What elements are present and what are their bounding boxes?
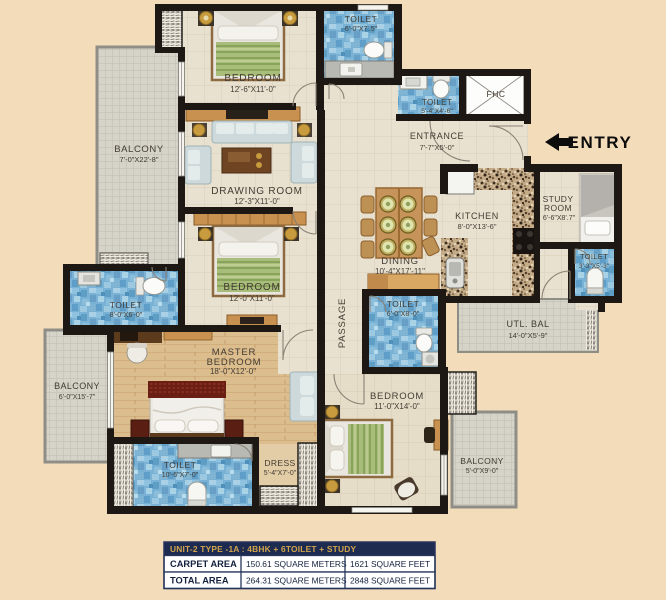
svg-text:CARPET AREA: CARPET AREA [170, 559, 237, 569]
svg-text:DINING: DINING [381, 256, 418, 267]
svg-text:UTL. BAL: UTL. BAL [506, 319, 549, 329]
svg-text:TOILET: TOILET [387, 299, 420, 309]
svg-text:150.61 SQUARE METERS: 150.61 SQUARE METERS [246, 559, 347, 569]
svg-text:7'-0"X22'-8": 7'-0"X22'-8" [119, 155, 158, 164]
svg-text:14'-0"X5'-9": 14'-0"X5'-9" [508, 331, 547, 340]
svg-text:BALCONY: BALCONY [460, 456, 503, 466]
svg-text:8'-0"X13'-6": 8'-0"X13'-6" [457, 222, 496, 231]
svg-text:ENTRANCE: ENTRANCE [410, 131, 464, 141]
svg-text:6'-0"X7'.5": 6'-0"X7'.5" [345, 26, 378, 33]
svg-text:TOILET: TOILET [580, 252, 608, 261]
svg-text:8'-0"X6'-0": 8'-0"X6'-0" [110, 312, 143, 319]
svg-text:10'-6"X7'-0": 10'-6"X7'-0" [162, 472, 199, 479]
svg-text:6'-6"X8'.7": 6'-6"X8'.7" [543, 215, 576, 222]
svg-text:TOTAL AREA: TOTAL AREA [170, 576, 229, 586]
svg-text:12'-6"X11'-0": 12'-6"X11'-0" [230, 85, 276, 94]
svg-text:TOILET: TOILET [345, 14, 378, 24]
svg-text:12'-0"X11'-0": 12'-0"X11'-0" [229, 294, 275, 303]
svg-text:BALCONY: BALCONY [54, 381, 100, 391]
svg-text:TOILET: TOILET [164, 460, 197, 470]
svg-text:1621 SQUARE FEET: 1621 SQUARE FEET [350, 559, 430, 569]
svg-text:BEDROOM: BEDROOM [370, 391, 424, 402]
svg-text:DRAWING ROOM: DRAWING ROOM [211, 186, 302, 197]
svg-text:BEDROOM: BEDROOM [223, 282, 280, 293]
svg-text:TOILET: TOILET [110, 300, 143, 310]
svg-text:18'-0"X12'-0": 18'-0"X12'-0" [210, 367, 256, 376]
svg-text:5'-0"X9'-0": 5'-0"X9'-0" [466, 468, 499, 475]
svg-text:5'-4"X7'-0": 5'-4"X7'-0" [264, 470, 297, 477]
svg-text:7'-7"X5'-0": 7'-7"X5'-0" [420, 143, 455, 152]
svg-text:10'-4"X17'-11": 10'-4"X17'-11" [375, 267, 425, 276]
svg-text:DRESS: DRESS [264, 458, 295, 468]
svg-text:PASSAGE: PASSAGE [337, 298, 348, 348]
svg-text:BALCONY: BALCONY [114, 144, 164, 155]
svg-text:UNIT-2 TYPE -1A : 4BHK + 6TOIL: UNIT-2 TYPE -1A : 4BHK + 6TOILET + STUDY [170, 544, 356, 554]
svg-text:11'-0"X14'-0": 11'-0"X14'-0" [374, 402, 420, 411]
svg-text:2848 SQUARE FEET: 2848 SQUARE FEET [350, 576, 430, 586]
svg-text:KITCHEN: KITCHEN [455, 211, 499, 221]
svg-text:ENTRY: ENTRY [568, 133, 633, 152]
svg-text:6'-0"X8'-0": 6'-0"X8'-0" [387, 311, 420, 318]
svg-text:TOILET: TOILET [422, 98, 452, 107]
svg-text:ROOM: ROOM [544, 203, 572, 213]
svg-text:BEDROOM: BEDROOM [224, 73, 281, 84]
svg-text:FHC: FHC [487, 89, 506, 99]
svg-text:12'-3"X11'-0": 12'-3"X11'-0" [234, 197, 280, 206]
svg-text:5'-4"X4'-6": 5'-4"X4'-6" [421, 108, 453, 115]
svg-text:6'-0"X15'-7": 6'-0"X15'-7" [59, 394, 96, 401]
svg-text:264.31 SQUARE METERS: 264.31 SQUARE METERS [246, 576, 347, 586]
svg-text:3'-3"X5'-3": 3'-3"X5'-3" [579, 263, 610, 270]
